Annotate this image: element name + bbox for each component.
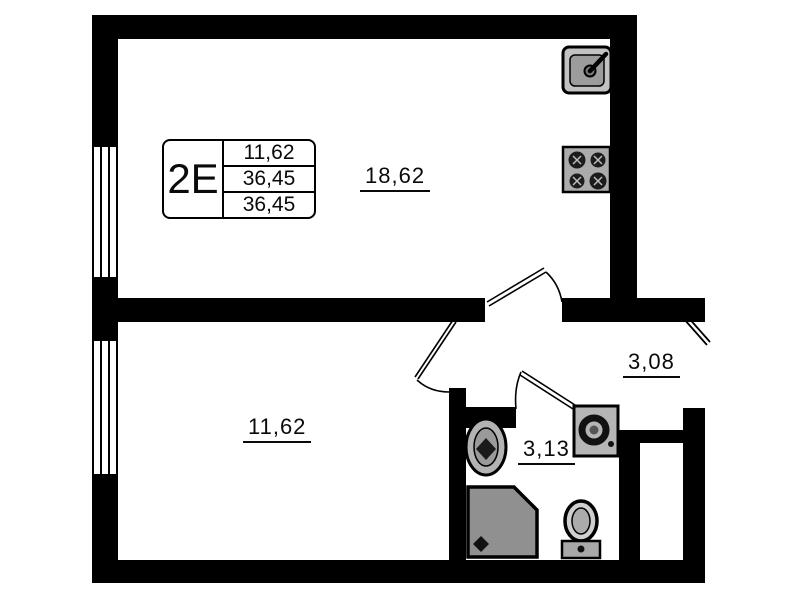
- bedroom-door: [415, 320, 456, 392]
- apartment-stamp: 2E 11,62 36,45 36,45: [162, 139, 316, 219]
- wall-bottom: [92, 560, 705, 583]
- wall-right: [683, 408, 705, 583]
- wall-shaft-top: [619, 430, 683, 443]
- wall-left-middle-pier: [92, 277, 118, 341]
- floor-plan: 2E 11,62 36,45 36,45 18,62 11,62 3,08 3,…: [0, 0, 799, 600]
- bedroom-area-label: 11,62: [243, 414, 311, 443]
- apartment-type-label: 2E: [164, 141, 224, 217]
- stamp-total-area-with-balcony: 36,45: [224, 193, 314, 217]
- wall-middle-right: [562, 298, 705, 322]
- living-room-area-label: 18,62: [360, 163, 430, 192]
- wall-shaft-left: [619, 430, 640, 562]
- hallway-area-label: 3,08: [623, 349, 680, 378]
- bathroom-area-label: 3,13: [518, 436, 575, 465]
- stamp-living-area: 11,62: [224, 141, 314, 167]
- toilet-icon: [562, 501, 600, 558]
- window-lower: [92, 341, 118, 474]
- wall-kitchen-right: [610, 15, 637, 316]
- wall-top: [92, 15, 637, 39]
- bathroom-door: [516, 371, 575, 409]
- stamp-total-area: 36,45: [224, 167, 314, 193]
- wall-middle-left: [118, 298, 485, 322]
- kitchen-sink-icon: [563, 47, 611, 93]
- wall-left-upper: [92, 15, 118, 147]
- living-room-door: [487, 268, 562, 306]
- stove-icon: [563, 147, 610, 192]
- wall-bathroom-top: [449, 407, 516, 428]
- washing-machine-icon: [574, 406, 618, 456]
- window-upper: [92, 147, 118, 277]
- apartment-stamp-values: 11,62 36,45 36,45: [224, 141, 314, 217]
- shower-icon: [468, 487, 537, 557]
